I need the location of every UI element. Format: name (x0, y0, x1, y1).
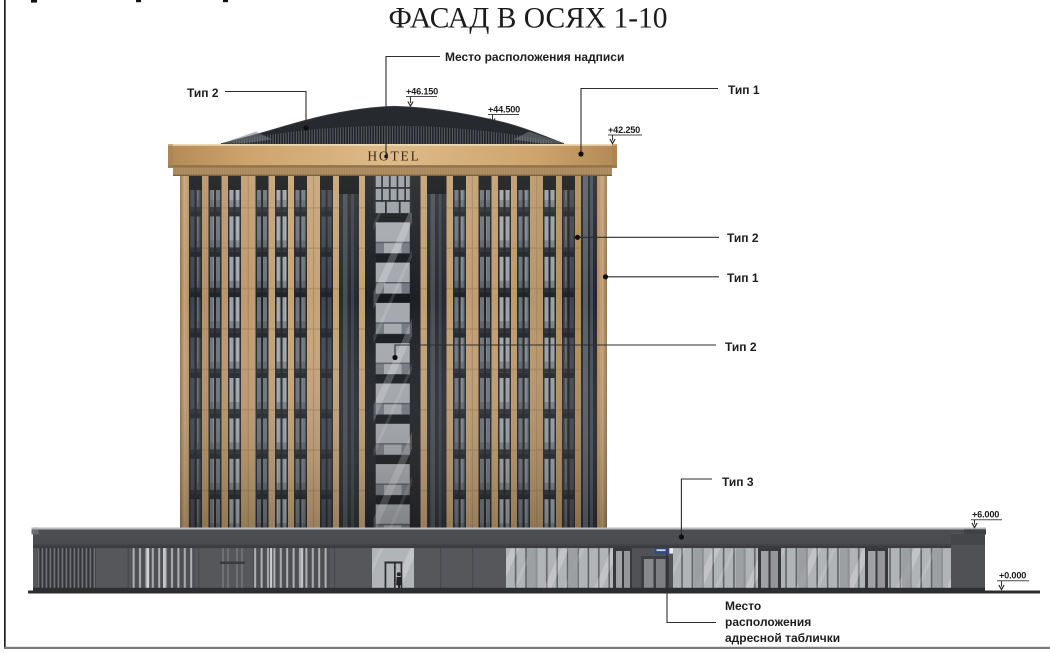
svg-text:Тип 3: Тип 3 (722, 475, 754, 489)
svg-text:+6.000: +6.000 (972, 510, 999, 520)
svg-text:HOTEL: HOTEL (367, 149, 420, 164)
svg-text:Тип 1: Тип 1 (728, 83, 760, 97)
svg-text:ФАСАД В ОСЯХ 1-10: ФАСАД В ОСЯХ 1-10 (388, 3, 667, 35)
svg-text:Место: Место (725, 599, 761, 613)
svg-text:+0.000: +0.000 (999, 571, 1026, 581)
svg-text:Тип 2: Тип 2 (727, 231, 759, 245)
svg-text:+42.250: +42.250 (608, 125, 640, 135)
svg-text:расположения: расположения (725, 615, 811, 629)
svg-text:Место расположения надписи: Место расположения надписи (445, 50, 624, 64)
svg-text:Тип 1: Тип 1 (727, 271, 759, 285)
svg-text:адресной таблички: адресной таблички (725, 631, 840, 645)
svg-text:+44.500: +44.500 (488, 105, 520, 115)
svg-text:Тип 2: Тип 2 (187, 86, 219, 100)
svg-text:Тип 2: Тип 2 (725, 340, 757, 354)
svg-text:+46.150: +46.150 (406, 87, 438, 97)
